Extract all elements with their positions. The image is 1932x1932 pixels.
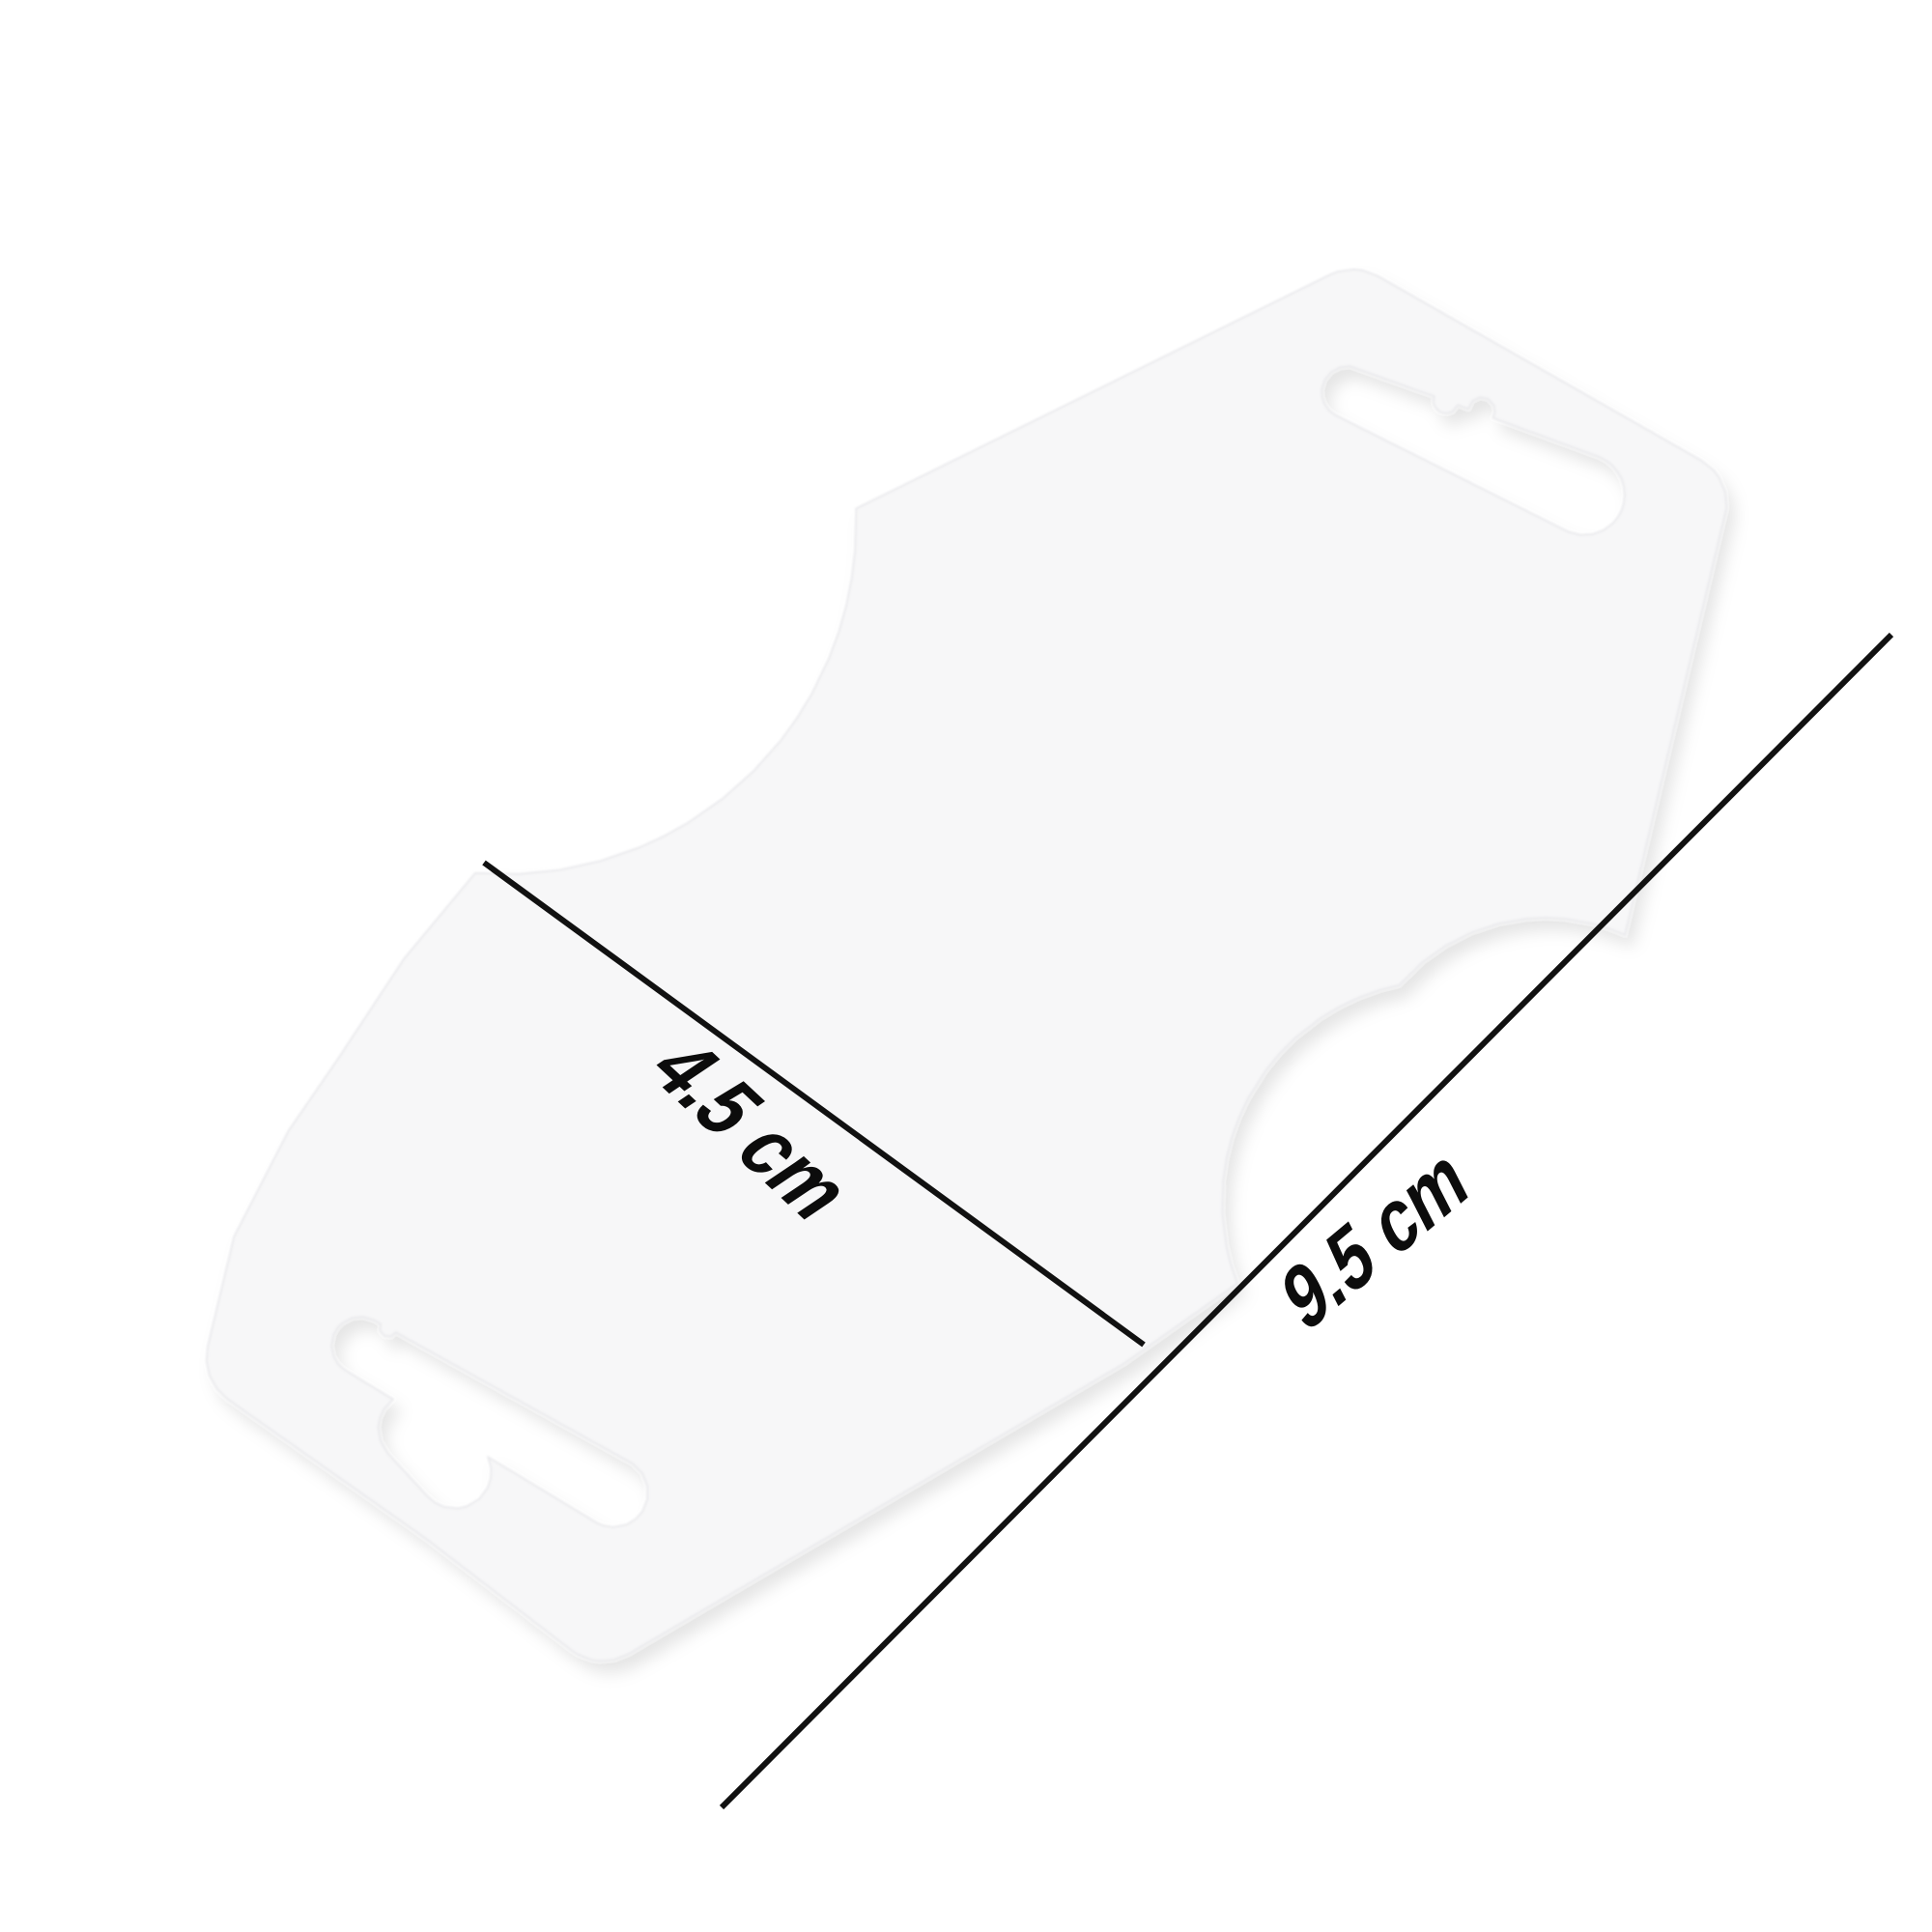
svg-text:9.5 cm: 9.5 cm: [1269, 1125, 1480, 1351]
